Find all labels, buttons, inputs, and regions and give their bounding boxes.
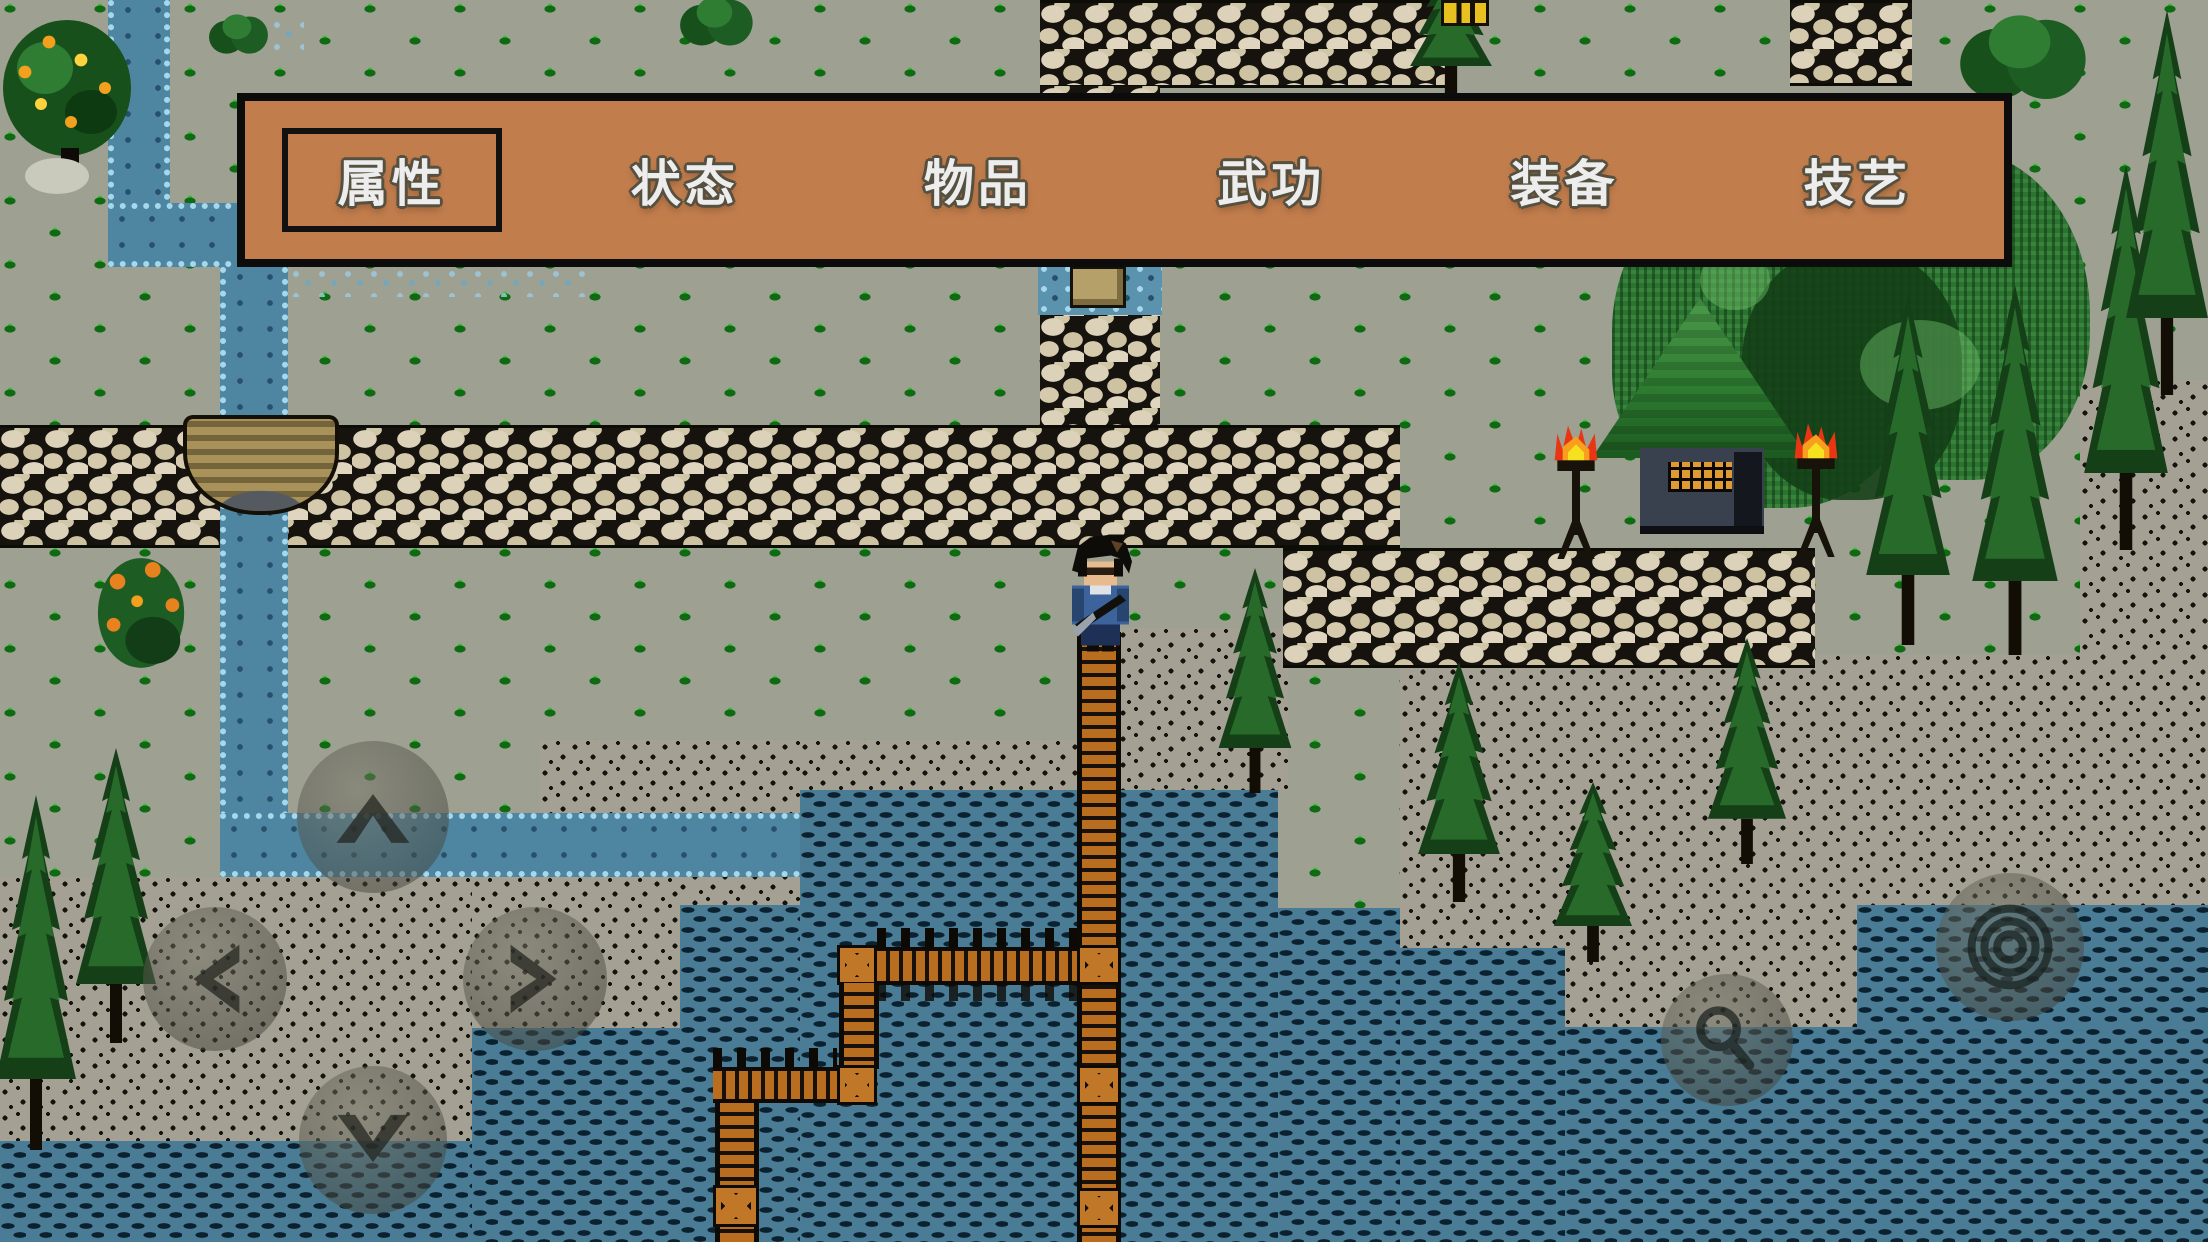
lake	[472, 1028, 680, 1242]
fruit-tree	[0, 12, 142, 202]
pier-post	[713, 1185, 759, 1227]
left-arrow-icon	[182, 935, 248, 1023]
small-tree	[208, 0, 270, 66]
menu-item-equipment[interactable]: 装备	[1418, 101, 1711, 259]
pine-tree	[1968, 285, 2062, 655]
flower-bush	[94, 546, 192, 676]
dpad-down-button[interactable]	[299, 1066, 447, 1214]
menu-item-label: 物品	[868, 128, 1088, 232]
stream-shimmer	[237, 267, 589, 297]
menu-item-label: 属性	[282, 128, 502, 232]
game-menu-bar: 属性 状态 物品 武功 装备 技艺	[237, 93, 2012, 267]
menu-item-items[interactable]: 物品	[831, 101, 1124, 259]
action-interact-button[interactable]	[1661, 974, 1793, 1106]
hut-door	[1734, 452, 1762, 526]
menu-item-martial-arts[interactable]: 武功	[1125, 101, 1418, 259]
menu-item-label: 武功	[1161, 128, 1381, 232]
menu-item-skills[interactable]: 技艺	[1711, 101, 2004, 259]
pine-tree	[0, 795, 80, 1150]
torch	[1792, 418, 1840, 568]
torch	[1552, 420, 1600, 570]
pier-fence	[877, 985, 1077, 1001]
wooden-pier	[877, 947, 1077, 985]
pine-tree	[1215, 568, 1295, 793]
dirt-patch	[800, 740, 1118, 790]
cobblestone-patch	[1040, 0, 1445, 88]
pier-post	[1077, 1188, 1121, 1228]
menu-item-attributes[interactable]: 属性	[245, 101, 538, 259]
down-arrow-icon	[328, 1106, 418, 1174]
pier-post	[1077, 1065, 1121, 1105]
pine-tree	[2122, 10, 2208, 395]
wooden-pier	[839, 983, 879, 1069]
menu-item-status[interactable]: 状态	[538, 101, 831, 259]
dpad-up-button[interactable]	[297, 741, 449, 893]
dpad-right-button[interactable]	[463, 907, 607, 1051]
yellow-sign	[1441, 0, 1489, 26]
lake	[1278, 908, 1400, 1242]
right-arrow-icon	[502, 935, 568, 1023]
wooden-pier	[713, 1067, 837, 1103]
pine-tree	[1704, 638, 1790, 864]
cobblestone-patch	[1790, 0, 1912, 86]
lake	[1400, 948, 1565, 1242]
pine-tree	[1414, 662, 1504, 902]
pier-fence	[713, 1048, 837, 1068]
interact-ring-icon	[1685, 998, 1769, 1082]
wooden-pier	[1077, 632, 1121, 1242]
action-secondary-button[interactable]	[1936, 873, 2084, 1021]
rope-coil-icon	[1962, 899, 2058, 995]
pier-post	[1077, 945, 1121, 985]
menu-item-label: 技艺	[1747, 128, 1967, 232]
pier-post	[837, 1065, 877, 1105]
menu-item-label: 装备	[1454, 128, 1674, 232]
bush-clump	[672, 0, 762, 48]
up-arrow-icon	[327, 782, 419, 852]
pier-fence	[877, 928, 1077, 948]
dpad-left-button[interactable]	[143, 907, 287, 1051]
stream	[220, 267, 288, 427]
lake	[1565, 1027, 2208, 1242]
pier-post	[837, 945, 877, 985]
player-character	[1060, 534, 1138, 655]
hut-window-lattice	[1668, 462, 1732, 492]
pine-tree	[1550, 782, 1636, 962]
pine-tree	[1862, 295, 1954, 645]
menu-item-label: 状态	[575, 128, 795, 232]
spring-well	[1070, 266, 1126, 308]
game-viewport: 属性 状态 物品 武功 装备 技艺	[0, 0, 2208, 1242]
